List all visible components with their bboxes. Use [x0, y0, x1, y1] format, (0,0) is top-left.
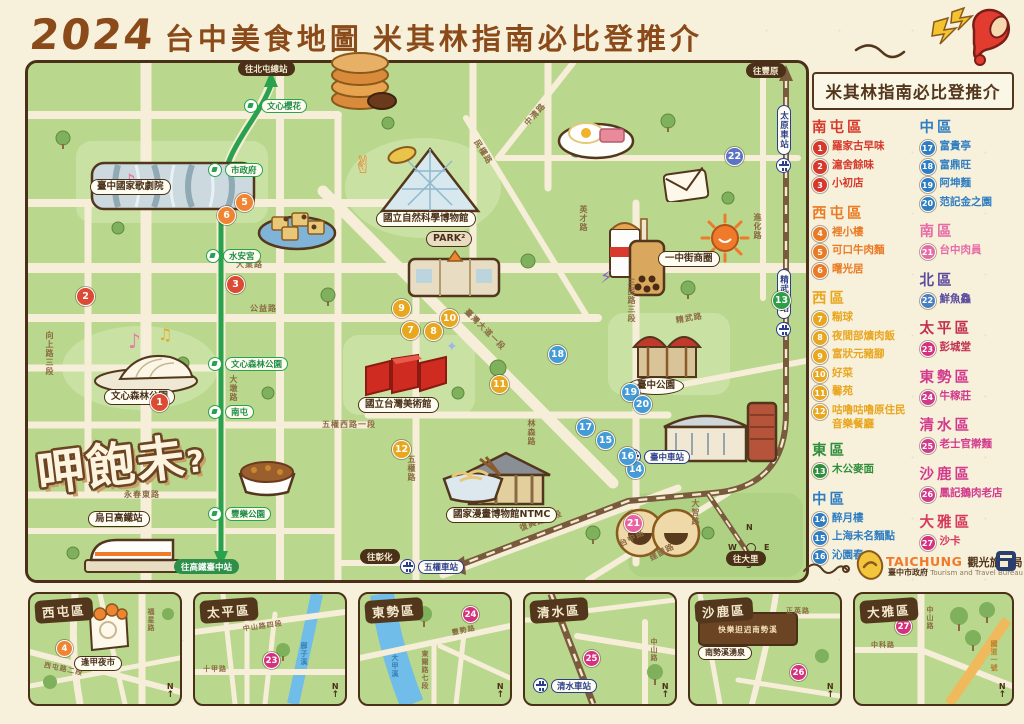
legend-item-name: 富狀元豬腳 — [832, 347, 885, 361]
compass-n: N — [746, 523, 753, 532]
legend-district-taiping: 太平區 — [920, 317, 1018, 338]
tra-station-wuquan: 五權車站 — [400, 559, 464, 574]
road-label: 中科路 — [871, 640, 895, 650]
legend-item-number: 9 — [812, 348, 828, 364]
legend-item-name: 牛稼莊 — [940, 389, 972, 403]
road-label: 正英路 — [786, 606, 810, 616]
main-map: ♪ ♪ ♫ ✌ ⚡ ✦ N E S W 公益路 大業路 向上路三段 大墩路 永春… — [25, 60, 809, 583]
road-label: 向上路三段 — [44, 331, 55, 376]
legend-district-daya: 大雅區 — [920, 511, 1018, 532]
legend-item-name: 沙卡 — [940, 534, 961, 548]
title-year: 2024 — [27, 10, 157, 59]
legend-item: 2滬舍餘味 — [812, 158, 910, 175]
legend-district-dongshi: 東勢區 — [920, 366, 1018, 387]
squiggle-icon — [856, 45, 904, 57]
tra-logo-icon — [533, 678, 548, 693]
legend-item-name: 范記金之園 — [940, 195, 993, 209]
legend-item-number: 20 — [920, 196, 936, 212]
map-marker: 7 — [401, 321, 420, 340]
legend-district-nantun: 南屯區 — [812, 116, 910, 137]
legend-item-number: 18 — [920, 159, 936, 175]
station-label: 五權車站 — [418, 560, 464, 574]
pancake-stack-illustration — [326, 49, 398, 117]
inset-district-tag: 西屯區 — [34, 597, 93, 624]
station-label: 臺中車站 — [644, 450, 690, 464]
legend-header-box: 米其林指南必比登推介 — [812, 72, 1014, 110]
legend-district-xitun: 西屯區 — [812, 202, 910, 223]
legend-item-number: 3 — [812, 177, 828, 193]
legend-item-name: 富鼎旺 — [940, 158, 972, 172]
legend-item-name: 上海未名麵點 — [832, 529, 895, 543]
legend-item: 13木公麥面 — [812, 462, 910, 479]
compass-e: E — [764, 543, 769, 552]
road-label: 五權路 — [406, 455, 417, 482]
mrt-station-shui-an-gong: 水安宮 — [206, 249, 261, 263]
legend-item-name: 醉月樓 — [832, 511, 864, 525]
legend-item-name: 好菜 — [832, 366, 853, 380]
map-marker: 11 — [490, 375, 509, 394]
legend-item: 15上海未名麵點 — [812, 529, 910, 546]
station-label: 太原車站 — [777, 105, 791, 155]
inset-qingshui: 中山路 清水車站 25 清水區 N — [523, 592, 677, 706]
legend-item: 12咕嚕咕嚕原住民音樂餐廳 — [812, 403, 910, 431]
legend-item: 10好菜 — [812, 366, 910, 383]
landmark-label-opera-house: 臺中國家歌劇院 — [90, 179, 171, 195]
legend-item-name: 羅家古早味 — [832, 139, 885, 153]
restaurant-legend: 南屯區 1羅家古早味 2滬舍餘味 3小初店 西屯區 4裡小樓 5可口牛肉麵 6曙… — [812, 116, 1017, 573]
gov-name: 臺中市政府 — [888, 568, 928, 577]
road-label: 林森路 — [526, 419, 537, 446]
legend-district-central-2: 中區 — [920, 116, 1018, 137]
mrt-station-wenxin-forest-park: 文心森林公園 — [208, 357, 288, 371]
inset-xitun: 福星路 西屯路二段 逢甲夜市 4 西屯區 N — [28, 592, 182, 706]
road-label: 大墩路 — [228, 375, 239, 402]
legend-item-number: 1 — [812, 140, 828, 156]
legend-column-left: 南屯區 1羅家古早味 2滬舍餘味 3小初店 西屯區 4裡小樓 5可口牛肉麵 6曙… — [812, 116, 910, 573]
map-marker: 25 — [583, 650, 600, 667]
legend-item-name: 富貴亭 — [940, 139, 972, 153]
legend-item-number: 6 — [812, 263, 828, 279]
envelope-illustration — [663, 166, 709, 206]
map-marker: 4 — [56, 640, 73, 657]
art-museum-illustration — [360, 351, 452, 403]
legend-header: 米其林指南必比登推介 — [826, 79, 1001, 103]
landmark-label-science-museum: 國立自然科學博物館 — [376, 211, 476, 227]
legend-item: 6曙光居 — [812, 262, 910, 279]
legend-district-shalu: 沙鹿區 — [920, 463, 1018, 484]
inset-district-tag: 清水區 — [529, 597, 588, 624]
district-insets: 福星路 西屯路二段 逢甲夜市 4 西屯區 N 十甲路 中山路四段 廍子溪 23 … — [28, 592, 996, 706]
tra-station-taiyuan: 太原車站 — [776, 105, 791, 173]
legend-item: 4裡小樓 — [812, 225, 910, 242]
legend-item: 5可口牛肉麵 — [812, 243, 910, 260]
legend-item-number: 8 — [812, 330, 828, 346]
title-sub: 米其林指南必比登推介 — [373, 16, 703, 58]
inset-dongshi: 大甲溪 豐勢路 東關路七段 24 東勢區 N — [358, 592, 512, 706]
music-note-icon: ♫ — [158, 325, 172, 344]
station-label: 南屯 — [225, 405, 254, 419]
legend-item-name: 滬舍餘味 — [832, 158, 874, 172]
legend-item-number: 26 — [920, 487, 936, 503]
legend-item: 26鳳記鵝肉老店 — [920, 486, 1018, 503]
inset-shalu: 快樂𨑨迌南勢溪 南勢溪湧泉 正英路 26 沙鹿區 N — [688, 592, 842, 706]
inset-district-tag: 太平區 — [199, 597, 258, 624]
map-marker: 9 — [392, 299, 411, 318]
leg end-item: 22鮮魚鱻 — [920, 292, 1018, 309]
legend-item-number: 17 — [920, 140, 936, 156]
legend-item-number: 19 — [920, 177, 936, 193]
river-label: 大甲溪 — [390, 654, 400, 678]
metro-icon — [208, 507, 222, 521]
legend-district-qingshui: 清水區 — [920, 414, 1018, 435]
pork-rice-bowl-illustration — [236, 448, 298, 504]
footer-logos: TAICHUNG 觀光旅遊局 臺中市政府 Tourism and Travel … — [800, 549, 1018, 583]
metro-icon — [208, 357, 222, 371]
map-marker: 15 — [596, 431, 615, 450]
legend-item-number: 10 — [812, 367, 828, 383]
station-label: 水安宮 — [223, 249, 261, 263]
north-indicator: N — [331, 683, 339, 700]
north-indicator: N — [826, 683, 834, 700]
station-label: 文心森林公園 — [225, 357, 288, 371]
legend-item-number: 13 — [812, 463, 828, 479]
inset-district-tag: 沙鹿區 — [694, 597, 753, 624]
egg-dish-illustration — [556, 105, 636, 167]
legend-item-number: 5 — [812, 244, 828, 260]
legend-item: 11馨苑 — [812, 384, 910, 401]
legend-item-number: 25 — [920, 438, 936, 454]
road-label: 公益路 — [250, 303, 277, 314]
station-label: 清水車站 — [551, 679, 597, 693]
tra-logo-icon — [776, 158, 791, 173]
map-marker: 13 — [772, 291, 791, 310]
megaphone-illustration — [848, 4, 1018, 70]
legend-item-name: 彭城堂 — [940, 340, 972, 354]
road-label: 大智路 — [690, 499, 701, 526]
map-marker: 12 — [392, 440, 411, 459]
landmark-label-fengjia: 逢甲夜市 — [74, 656, 122, 671]
mrt-station-wenxin-yinghua: 文心櫻花 — [244, 99, 307, 113]
landmark-label-comics-museum: 國家漫畫博物館NTMC — [446, 507, 557, 523]
road-label: 五權西路一段 — [322, 419, 376, 430]
landmark-label-park2: PARK² — [426, 231, 472, 247]
legend-district-west: 西區 — [812, 287, 910, 308]
legend-item-number: 23 — [920, 341, 936, 357]
map-marker: 1 — [150, 393, 169, 412]
map-marker: 16 — [618, 447, 637, 466]
legend-item-number: 2 — [812, 159, 828, 175]
peace-hand-icon: ✌ — [353, 151, 373, 179]
map-marker: 23 — [263, 652, 280, 669]
legend-item-name: 老士官擀麵 — [940, 437, 993, 451]
legend-item: 24牛稼莊 — [920, 389, 1018, 406]
direction-beitun: 往北屯總站 — [238, 61, 295, 76]
map-marker: 22 — [725, 147, 744, 166]
legend-item: 20范記金之園 — [920, 195, 1018, 212]
legend-item: 8夜間部爌肉飯 — [812, 329, 910, 346]
north-indicator: N — [166, 683, 174, 700]
park2-illustration — [406, 247, 502, 303]
map-marker: 6 — [217, 206, 236, 225]
legend-item-number: 22 — [920, 293, 936, 309]
station-label: 文心櫻花 — [261, 99, 307, 113]
legend-column-right: 中區 17富貴亭 18富鼎旺 19阿坤麵 20范記金之園 南區 21台中肉員 北… — [920, 116, 1018, 573]
station-label: 市政府 — [225, 163, 263, 177]
noodle-bowl-illustration — [440, 455, 506, 511]
legend-district-central: 中區 — [812, 488, 910, 509]
mrt-station-nantun: 南屯 — [208, 405, 254, 419]
legend-item: 19阿坤麵 — [920, 176, 1018, 193]
legend-item-name: 咕嚕咕嚕原住民音樂餐廳 — [832, 403, 910, 431]
legend-item-name: 鳳記鵝肉老店 — [940, 486, 1003, 500]
map-marker: 17 — [576, 418, 595, 437]
map-marker: 21 — [624, 514, 643, 533]
legend-district-north: 北區 — [920, 269, 1018, 290]
map-marker: 26 — [790, 664, 807, 681]
hsr-train-illustration — [83, 528, 185, 582]
landmark-label-yizhong-street: 一中街商圈 — [658, 251, 720, 267]
legend-item: 9富狀元豬腳 — [812, 347, 910, 364]
river-label: 廍子溪 — [299, 642, 309, 666]
legend-item-number: 11 — [812, 385, 828, 401]
legend-item: 25老士官擀麵 — [920, 437, 1018, 454]
legend-item-number: 15 — [812, 530, 828, 546]
map-marker: 18 — [548, 345, 567, 364]
legend-district-east: 東區 — [812, 439, 910, 460]
metro-icon — [206, 249, 220, 263]
science-museum-illustration — [378, 143, 482, 221]
tofu-plate-illustration — [256, 197, 338, 257]
map-marker: 24 — [462, 606, 479, 623]
pen-squiggle-icon — [800, 553, 852, 579]
metro-icon — [208, 163, 222, 177]
station-label: 豐樂公園 — [225, 507, 271, 521]
road-label: 中山路 — [925, 606, 935, 630]
road-label: 中山路 — [649, 638, 659, 662]
legend-item-number: 24 — [920, 390, 936, 406]
highway-label: 國道一號 — [989, 640, 999, 672]
legend-item-name: 木公麥面 — [832, 462, 874, 476]
legend-item-name: 夜間部爌肉飯 — [832, 329, 895, 343]
legend-item: 23彭城堂 — [920, 340, 1018, 357]
legend-item-number: 14 — [812, 512, 828, 528]
road-label: 進化路 — [752, 213, 763, 240]
mrt-station-fengle-park: 豐樂公園 — [208, 507, 271, 521]
legend-item-name: 可口牛肉麵 — [832, 243, 885, 257]
legend-item-name: 馨苑 — [832, 384, 853, 398]
landmark-label-wuri-hsr: 烏日高鐵站 — [88, 511, 150, 527]
landmark-label-nanshi-spring: 南勢溪湧泉 — [698, 646, 752, 660]
road-label: 東關路七段 — [420, 650, 430, 690]
legend-item-name: 曙光居 — [832, 262, 864, 276]
north-indicator: N — [496, 683, 504, 700]
legend-item: 17富貴亭 — [920, 139, 1018, 156]
map-marker: 5 — [235, 193, 254, 212]
oval-logo-icon — [856, 549, 884, 581]
legend-item: 14醉月樓 — [812, 511, 910, 528]
legend-item-name: 台中肉員 — [940, 243, 982, 257]
tra-logo-icon — [400, 559, 415, 574]
map-marker: 2 — [76, 287, 95, 306]
sparkle-icon: ✦ — [446, 339, 458, 355]
legend-item-number: 4 — [812, 226, 828, 242]
music-note-icon: ♪ — [128, 329, 141, 353]
legend-item-name: 阿坤麵 — [940, 176, 972, 190]
road-label: 三民路三段 — [626, 278, 637, 323]
road-label: 福星路 — [146, 608, 156, 632]
inset-district-tag: 東勢區 — [364, 597, 423, 624]
north-indicator: N — [661, 683, 669, 700]
metro-icon — [244, 99, 258, 113]
map-marker: 20 — [633, 395, 652, 414]
north-indicator: N — [998, 683, 1006, 700]
logo-question-mark: ? — [185, 444, 209, 481]
tra-station-qingshui: 清水車站 — [533, 678, 597, 693]
inset-taiping: 十甲路 中山路四段 廍子溪 23 太平區 N — [193, 592, 347, 706]
lightning-icon: ⚡ — [600, 267, 613, 288]
direction-dali: 往大里 — [726, 551, 766, 566]
legend-item: 21台中肉員 — [920, 243, 1018, 260]
road-label: 十甲路 — [203, 664, 227, 674]
legend-item: 1羅家古早味 — [812, 139, 910, 156]
inset-daya: 中山路 中科路 國道一號 27 大雅區 N — [853, 592, 1014, 706]
mrt-station-city-hall: 市政府 — [208, 163, 263, 177]
metro-icon — [208, 405, 222, 419]
direction-hsr-taichung: 往高鐵臺中站 — [174, 559, 239, 574]
landmark-label-art-museum: 國立台灣美術館 — [358, 397, 439, 413]
legend-item-number: 12 — [812, 404, 828, 420]
map-marker: 3 — [226, 275, 245, 294]
tra-logo-icon — [776, 322, 791, 337]
legend-item-name: 裡小樓 — [832, 225, 864, 239]
legend-district-south: 南區 — [920, 220, 1018, 241]
road-label: 英才路 — [578, 205, 589, 232]
partner-badge-icon — [996, 551, 1016, 571]
legend-item-name: 糋球 — [832, 310, 853, 324]
legend-item-name: 小初店 — [832, 176, 864, 190]
inset-district-tag: 大雅區 — [859, 597, 918, 624]
legend-item-number: 7 — [812, 311, 828, 327]
legend-item: 18富鼎旺 — [920, 158, 1018, 175]
legend-item: 3小初店 — [812, 176, 910, 193]
lightning-icon — [951, 8, 972, 30]
map-marker: 8 — [424, 322, 443, 341]
legend-item-number: 21 — [920, 244, 936, 260]
map-marker: 10 — [440, 309, 459, 328]
direction-changhua: 往彰化 — [360, 549, 400, 564]
direction-fengyuan: 往豐原 — [746, 63, 786, 78]
legend-item-name: 鮮魚鱻 — [940, 292, 972, 306]
legend-item: 7糋球 — [812, 310, 910, 327]
